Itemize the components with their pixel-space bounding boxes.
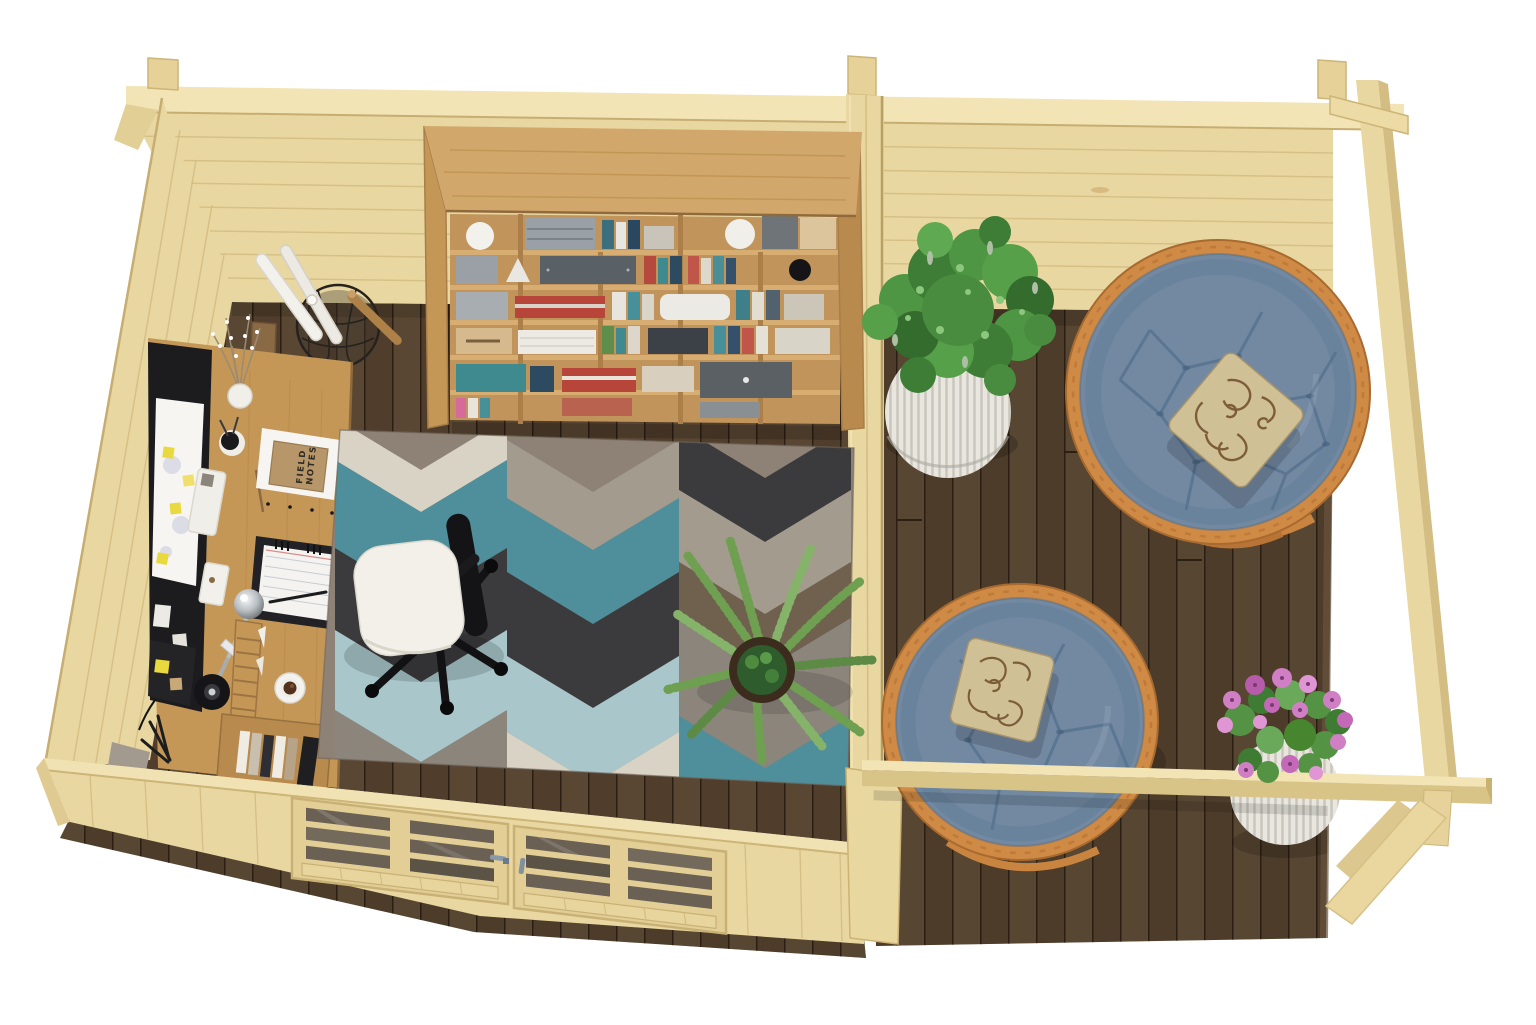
gray-cube [762,216,798,249]
render-canvas: FIELDNOTES [0,0,1536,1025]
teal-book-stack [456,364,526,392]
book-spine [612,292,626,320]
metal-bin [540,256,636,284]
white-sphere-vase [725,219,755,249]
book-spine [714,326,726,354]
book-spine [766,290,780,320]
beige-stack [642,366,694,392]
field-notes-text: FIELDNOTES [295,444,319,485]
gray-box [456,292,508,320]
black-sphere [789,259,811,281]
gray-drawer-box [525,218,595,249]
book-spine [713,256,724,284]
post-tip-left [148,58,178,90]
post-tip-back-right [1318,60,1346,100]
book-spine [736,290,750,320]
book-spine [658,258,668,284]
book-spine [726,258,736,284]
book-spine [616,328,626,354]
book-spine [628,220,640,249]
paper-stack [784,294,824,320]
book-spine [701,258,711,284]
book-spine [642,294,654,320]
book-spine [688,256,699,284]
book-stack [562,398,632,416]
plywood-cube [800,218,836,249]
paper-stack [644,226,674,249]
book-spine [480,398,490,418]
paper-stack [518,330,596,354]
lamp-head [234,589,264,619]
bookshelf-top-panel [424,126,862,216]
book-spine [530,366,554,392]
book-spine [616,222,626,249]
book-spine [628,326,640,354]
cabin-top-view: FIELDNOTES [0,0,1536,1025]
book-spine [670,256,682,284]
papasan-chair-top [1066,240,1370,546]
book-spine [742,328,754,354]
book-spine [644,256,656,284]
book-spine [628,292,640,320]
bookshelf [424,126,864,440]
book-spine [752,292,764,320]
post-tip-middle [848,56,876,96]
book-spine [468,398,478,418]
white-vase [228,384,252,408]
book-spine [602,326,614,354]
coffee-cup [275,673,305,703]
book-spine [728,326,740,354]
dark-tray [148,640,196,706]
gray-wedge [700,402,760,418]
white-card [153,604,171,628]
paper-stack [775,328,830,354]
gray-box [456,256,498,284]
dark-box [648,328,708,354]
white-object [660,294,730,320]
book-spine [756,326,768,354]
book-spine [602,220,614,249]
book-spine [456,398,466,418]
white-sphere-vase [466,222,494,250]
